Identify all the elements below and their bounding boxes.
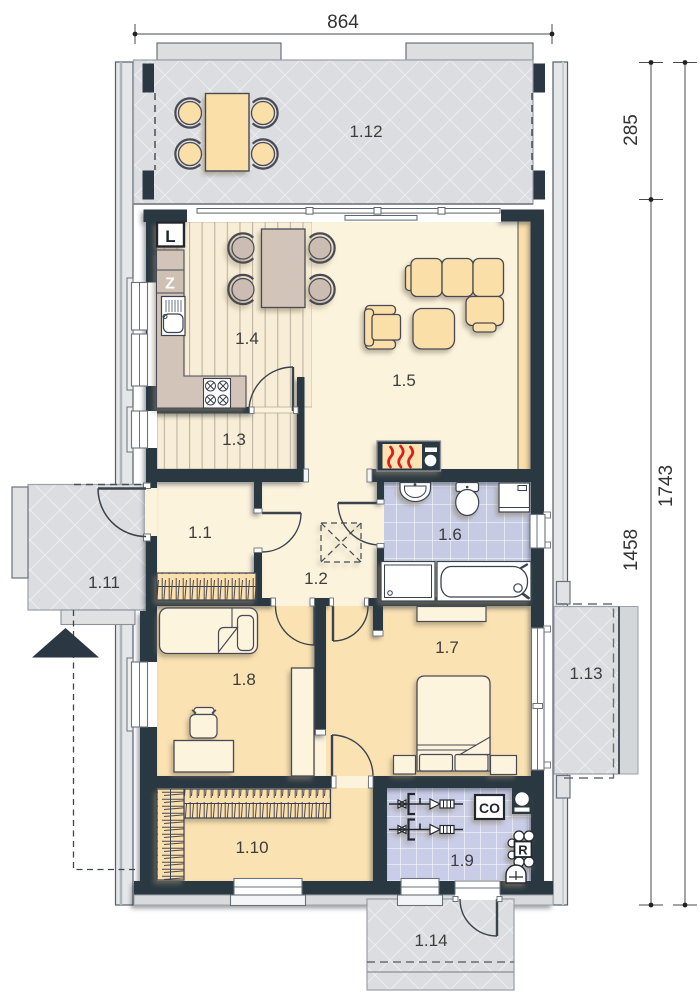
svg-text:1.13: 1.13 [569, 664, 602, 683]
svg-text:1.4: 1.4 [235, 329, 259, 348]
svg-text:1458: 1458 [621, 529, 642, 571]
svg-text:1.6: 1.6 [438, 525, 462, 544]
svg-text:1.12: 1.12 [349, 122, 382, 141]
svg-text:1.3: 1.3 [222, 430, 246, 449]
svg-text:1.2: 1.2 [304, 569, 328, 588]
svg-text:CO: CO [479, 800, 500, 816]
svg-text:1.9: 1.9 [450, 851, 474, 870]
svg-text:1.5: 1.5 [392, 371, 416, 390]
svg-text:1.7: 1.7 [435, 638, 459, 657]
svg-text:1.8: 1.8 [232, 670, 256, 689]
svg-text:1.14: 1.14 [414, 931, 447, 950]
svg-text:864: 864 [327, 12, 359, 33]
svg-text:1.10: 1.10 [235, 838, 268, 857]
svg-text:Z: Z [165, 276, 175, 293]
svg-text:1.1: 1.1 [188, 523, 212, 542]
svg-text:1743: 1743 [656, 465, 677, 507]
svg-text:285: 285 [621, 114, 642, 146]
svg-text:L: L [165, 227, 175, 246]
svg-text:1.11: 1.11 [88, 573, 120, 592]
svg-text:R: R [518, 843, 528, 858]
